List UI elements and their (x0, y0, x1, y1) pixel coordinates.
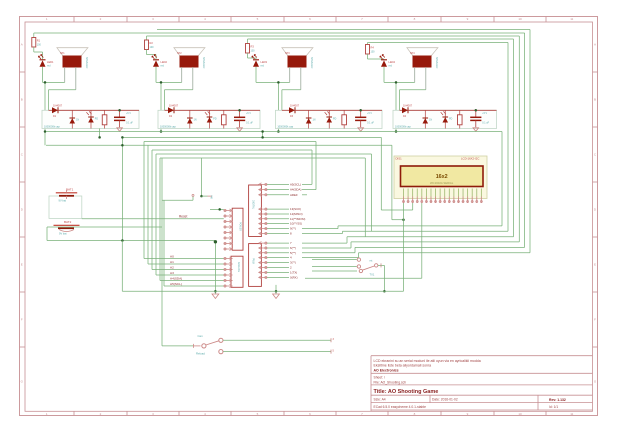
svg-text:100: 100 (371, 51, 376, 54)
svg-text:+5 V: +5 V (367, 113, 372, 115)
svg-text:Rev: 1.132: Rev: 1.132 (549, 398, 566, 402)
svg-text:16x2: 16x2 (436, 174, 448, 180)
svg-text:12(MISO): 12(MISO) (290, 212, 303, 216)
svg-text:R4: R4 (371, 46, 375, 50)
svg-text:A2: A2 (170, 266, 174, 270)
svg-text:0.1 uF: 0.1 uF (482, 122, 489, 125)
svg-text:11: 11 (570, 17, 573, 21)
svg-text:PD: PD (333, 119, 337, 121)
svg-text:A4(SDA): A4(SDA) (290, 188, 301, 192)
svg-text:Id: 1/1: Id: 1/1 (549, 405, 558, 409)
svg-text:F: F (594, 318, 596, 322)
svg-text:rst: rst (370, 259, 373, 263)
svg-text:+5 V: +5 V (482, 113, 487, 115)
svg-text:BAT1: BAT1 (66, 188, 74, 192)
svg-text:9(**): 9(**) (290, 227, 296, 231)
svg-text:File: AO_Shooting.sch: File: AO_Shooting.sch (374, 380, 407, 384)
svg-text:10: 10 (518, 412, 522, 416)
svg-text:5(**): 5(**) (290, 251, 296, 255)
svg-text:LED4: LED4 (389, 60, 396, 64)
svg-text:SP4: SP4 (410, 52, 415, 55)
svg-text:100: 100 (37, 44, 42, 47)
svg-text:SPEAKER: SPEAKER (202, 57, 205, 69)
svg-text:Eksiltme liste beta aliyordama: Eksiltme liste beta aliyordamali sonra (374, 364, 432, 368)
svg-text:Reset: Reset (179, 215, 187, 219)
svg-text:0.1 uF: 0.1 uF (126, 122, 133, 125)
svg-text:LCD-16X2-I2C: LCD-16X2-I2C (461, 157, 479, 161)
svg-text:A1: A1 (170, 260, 174, 264)
svg-text:PD: PD (95, 119, 99, 121)
svg-text:10: 10 (518, 17, 522, 21)
svg-text:+5 V: +5 V (246, 113, 251, 115)
svg-text:POWER: POWER (239, 222, 242, 231)
svg-text:+5 V: +5 V (126, 113, 131, 115)
svg-text:SPEAKER: SPEAKER (85, 57, 88, 69)
svg-text:3(**): 3(**) (290, 261, 296, 265)
svg-text:1N: 1N (312, 120, 315, 122)
svg-text:SPEAKER: SPEAKER (310, 57, 313, 69)
svg-text:Vin: Vin (210, 195, 214, 199)
svg-text:SP3: SP3 (285, 52, 290, 55)
svg-text:1N4007: 1N4007 (290, 104, 300, 108)
svg-text:A4(SDA): A4(SDA) (170, 277, 182, 281)
svg-text:A0: A0 (170, 255, 174, 259)
svg-text:B: B (594, 98, 596, 102)
svg-text:11: 11 (570, 412, 573, 416)
svg-text:A5(SCL): A5(SCL) (170, 282, 182, 286)
svg-text:A: A (21, 42, 23, 46)
svg-text:WC1602A SERIAL: WC1602A SERIAL (430, 181, 454, 185)
svg-text:PD: PD (213, 119, 217, 121)
svg-text:A3: A3 (170, 271, 174, 275)
svg-text:100: 100 (150, 46, 155, 49)
svg-text:1(TX): 1(TX) (290, 271, 297, 275)
svg-text:Date: 2016-01-02: Date: 2016-01-02 (432, 398, 458, 402)
svg-text:11(**/MOSI): 11(**/MOSI) (290, 217, 305, 221)
svg-text:SP1: SP1 (60, 52, 65, 55)
svg-text:1N4007: 1N4007 (169, 104, 179, 108)
svg-text:F: F (21, 318, 23, 322)
svg-text:10(**/SS): 10(**/SS) (290, 222, 302, 226)
svg-text:ECad 6.5.0 easycheme 4.0.1-s: ECad 6.5.0 easycheme 4.0.1-stable (374, 405, 427, 409)
svg-text:AO Electronics: AO Electronics (374, 369, 399, 373)
svg-text:LED2: LED2 (161, 60, 168, 64)
svg-text:A5(SCL): A5(SCL) (290, 183, 301, 187)
svg-text:13(SCK): 13(SCK) (290, 207, 301, 211)
svg-text:1000000k cap: 1000000k cap (277, 125, 293, 128)
svg-text:0.1 uF: 0.1 uF (367, 122, 374, 125)
svg-text:LCD ekranini su an serial modu: LCD ekranini su an serial modunl ile atl… (374, 359, 481, 363)
svg-text:100: 100 (251, 50, 256, 53)
svg-text:1N4007: 1N4007 (403, 104, 413, 108)
svg-text:B: B (21, 98, 23, 102)
svg-text:LED1: LED1 (47, 60, 54, 64)
svg-text:1000000k cap: 1000000k cap (160, 125, 176, 128)
svg-text:DIS1: DIS1 (396, 157, 403, 161)
svg-text:SPEAKER: SPEAKER (435, 57, 438, 69)
svg-text:E: E (21, 263, 23, 267)
svg-text:9V bat: 9V bat (59, 199, 67, 203)
svg-text:1N: 1N (76, 120, 79, 122)
svg-text:Title: AO Shooting Game: Title: AO Shooting Game (374, 389, 439, 395)
svg-text:0(RX): 0(RX) (290, 276, 298, 280)
svg-text:6(**): 6(**) (290, 246, 296, 250)
svg-text:PWM: PWM (252, 258, 255, 264)
svg-text:SP2: SP2 (177, 52, 182, 55)
svg-text:0.1 uF: 0.1 uF (246, 122, 253, 125)
svg-text:AREF: AREF (290, 193, 298, 197)
svg-text:1000000k cap: 1000000k cap (44, 125, 60, 128)
svg-text:Can: Can (198, 334, 204, 338)
svg-text:PD: PD (449, 119, 453, 121)
svg-text:1N4007: 1N4007 (53, 104, 63, 108)
svg-text:DIGITAL: DIGITAL (252, 200, 255, 210)
svg-text:Reload: Reload (196, 352, 205, 356)
svg-text:R3: R3 (251, 45, 255, 49)
svg-text:R2: R2 (150, 41, 154, 45)
svg-text:Sheet: /: Sheet: / (374, 376, 385, 380)
svg-text:ANALOG: ANALOG (237, 262, 240, 272)
svg-text:9V bat: 9V bat (59, 232, 67, 236)
svg-text:LED3: LED3 (261, 60, 268, 64)
svg-text:BAT2: BAT2 (64, 220, 72, 224)
svg-text:TX1: TX1 (370, 272, 375, 276)
svg-text:R1: R1 (37, 39, 41, 43)
svg-text:1N: 1N (429, 120, 432, 122)
svg-text:Size: A4: Size: A4 (374, 398, 386, 402)
svg-text:E: E (594, 263, 596, 267)
svg-text:A: A (594, 42, 596, 46)
svg-text:1000000k cap: 1000000k cap (395, 125, 411, 128)
svg-text:1N: 1N (194, 120, 197, 122)
